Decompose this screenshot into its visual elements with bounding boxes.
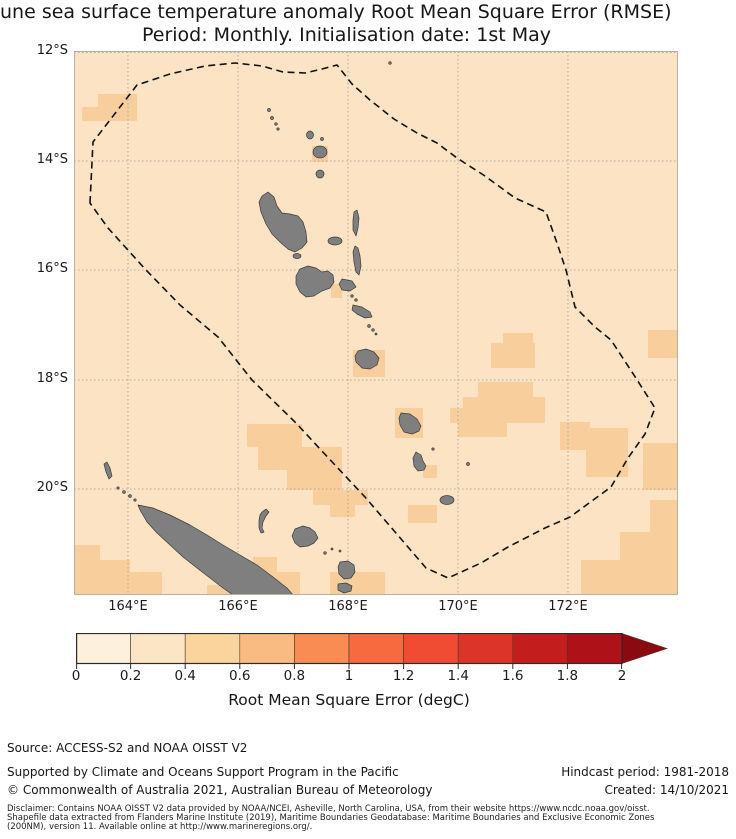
island-dot (123, 491, 126, 494)
colorbar-segment (240, 634, 295, 664)
lat-label-12s: 12°S (16, 43, 68, 58)
island-ambae (328, 237, 342, 245)
island-dot (331, 548, 333, 550)
island-mota (321, 138, 324, 141)
lat-label-14s: 14°S (16, 152, 68, 167)
island-dot (355, 299, 358, 302)
island-vanua-lava (307, 131, 314, 139)
colorbar-segment (567, 634, 622, 664)
map-canvas (74, 51, 678, 595)
cb-tick-16: 1.6 (491, 668, 535, 684)
island-dot (134, 499, 136, 501)
lon-label-166e: 166°E (208, 599, 268, 614)
created-date-text: Created: 14/10/2021 (604, 783, 729, 797)
copyright-text: © Commonwealth of Australia 2021, Austra… (7, 783, 432, 797)
colorbar-axis-label: Root Mean Square Error (degC) (149, 691, 549, 709)
hindcast-period-text: Hindcast period: 1981-2018 (561, 765, 729, 779)
island-dot (117, 487, 119, 489)
lon-label-172e: 172°E (538, 599, 598, 614)
island-dot (277, 128, 279, 130)
figure-title-line2: Period: Monthly. Initialisation date: 1s… (142, 24, 551, 46)
island-futuna (467, 463, 470, 466)
island-dot (375, 333, 377, 335)
island-aniwa (432, 448, 434, 450)
source-text: Source: ACCESS-S2 and NOAA OISST V2 (7, 741, 247, 755)
island-malo (293, 254, 301, 259)
island-dot (271, 117, 274, 120)
lon-label-164e: 164°E (98, 599, 158, 614)
cb-tick-12: 1.2 (382, 668, 426, 684)
island-dot (268, 109, 271, 112)
colorbar-segment (185, 634, 240, 664)
supported-text: Supported by Climate and Oceans Support … (7, 765, 399, 779)
cb-tick-06: 0.6 (218, 668, 262, 684)
cb-tick-0: 0 (54, 668, 98, 684)
island-gaua (313, 146, 327, 158)
cb-tick-08: 0.8 (272, 668, 316, 684)
island-aneityum (440, 496, 454, 505)
island-dot (372, 329, 375, 332)
colorbar-segment (404, 634, 459, 664)
island-dot (275, 123, 278, 126)
island-dot (339, 550, 341, 552)
island-dot (351, 295, 354, 298)
cb-tick-02: 0.2 (109, 668, 153, 684)
cb-tick-1: 1 (327, 668, 371, 684)
lon-label-170e: 170°E (428, 599, 488, 614)
colorbar-segment (349, 634, 404, 664)
lat-label-16s: 16°S (16, 261, 68, 276)
colorbar-segment (76, 634, 131, 664)
colorbar-segment (458, 634, 513, 664)
island-tiga (324, 552, 327, 555)
cb-tick-18: 1.8 (545, 668, 589, 684)
island-mere-lava (316, 170, 324, 178)
colorbar-extend-arrow (622, 634, 667, 664)
figure-title-line1: une sea surface temperature anomaly Root… (0, 1, 672, 23)
disclaimer-line3: (200NM), version 11. Available online at… (7, 822, 312, 832)
lat-label-20s: 20°S (16, 480, 68, 495)
lat-label-18s: 18°S (16, 371, 68, 386)
island-dot (389, 62, 392, 65)
colorbar-segment (513, 634, 568, 664)
lon-label-168e: 168°E (318, 599, 378, 614)
cb-tick-14: 1.4 (436, 668, 480, 684)
cb-tick-2: 2 (600, 668, 644, 684)
colorbar-segment (294, 634, 349, 664)
figure-page: une sea surface temperature anomaly Root… (0, 0, 736, 839)
colorbar-segment (131, 634, 186, 664)
cb-tick-04: 0.4 (163, 668, 207, 684)
colorbar (76, 633, 670, 671)
island-dot (129, 495, 132, 498)
island-dot (368, 325, 371, 328)
